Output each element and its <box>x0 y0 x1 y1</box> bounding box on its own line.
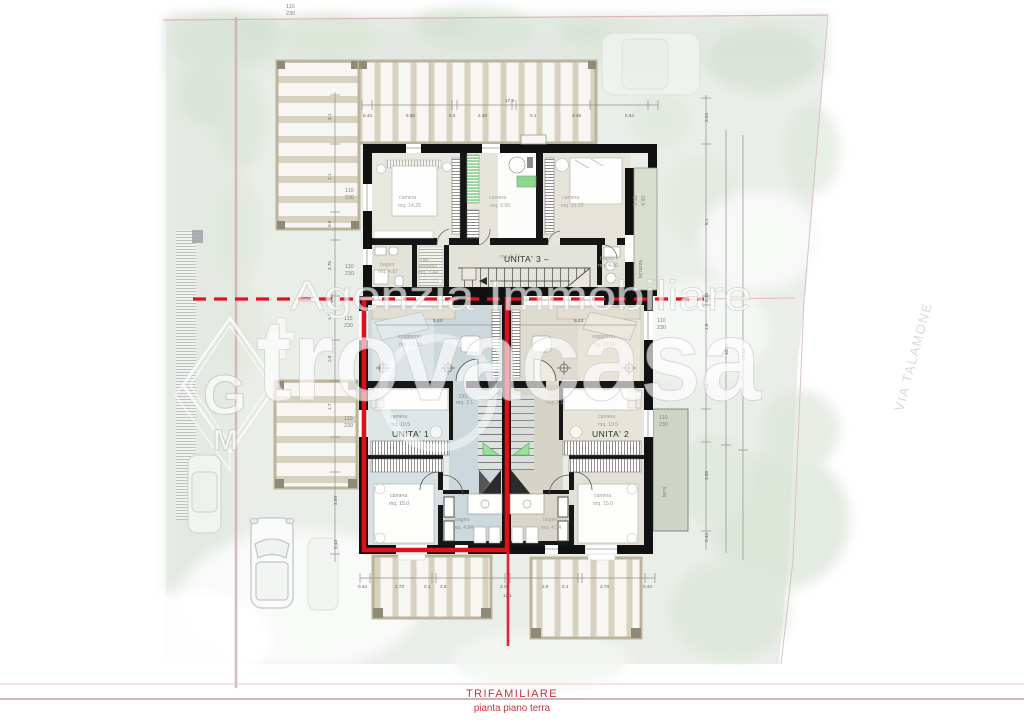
svg-text:0.44: 0.44 <box>358 584 367 589</box>
svg-text:110: 110 <box>286 4 295 10</box>
svg-text:0.2: 0.2 <box>449 113 456 118</box>
svg-text:camera: camera <box>562 195 579 201</box>
svg-text:17.9: 17.9 <box>505 98 514 103</box>
svg-text:0.1: 0.1 <box>530 113 537 118</box>
svg-text:camera: camera <box>390 493 407 499</box>
svg-text:0.5: 0.5 <box>327 220 332 227</box>
svg-text:0.44: 0.44 <box>363 113 372 118</box>
svg-text:mq. 15.0: mq. 15.0 <box>593 501 613 507</box>
svg-text:2.49: 2.49 <box>478 113 487 118</box>
svg-text:bagno: bagno <box>455 517 470 523</box>
svg-text:3.59: 3.59 <box>333 496 338 505</box>
svg-text:bagno: bagno <box>380 262 395 268</box>
svg-text:3.1: 3.1 <box>327 113 332 120</box>
svg-text:2.04: 2.04 <box>704 113 709 122</box>
svg-text:0.1: 0.1 <box>562 584 569 589</box>
svg-text:2.8: 2.8 <box>542 584 549 589</box>
svg-text:2.1: 2.1 <box>327 173 332 180</box>
svg-text:bagno: bagno <box>600 256 615 262</box>
svg-text:9.06: 9.06 <box>406 113 415 118</box>
svg-text:0.44: 0.44 <box>704 533 709 542</box>
svg-text:M: M <box>213 424 238 457</box>
svg-text:UNITA' 3 –: UNITA' 3 – <box>504 254 549 264</box>
svg-text:UNITA' 2: UNITA' 2 <box>592 429 629 439</box>
svg-text:mq. 14.25: mq. 14.25 <box>398 203 421 209</box>
svg-text:3.10: 3.10 <box>633 196 639 207</box>
svg-text:camera: camera <box>594 493 611 499</box>
svg-text:0.44: 0.44 <box>643 584 652 589</box>
svg-text:110: 110 <box>345 264 354 270</box>
svg-text:8.1: 8.1 <box>704 218 709 225</box>
svg-text:camera: camera <box>399 195 416 201</box>
svg-text:0.1: 0.1 <box>424 584 431 589</box>
svg-text:4.75: 4.75 <box>327 261 332 270</box>
svg-text:3.58: 3.58 <box>704 471 709 480</box>
svg-text:mq. 15.0: mq. 15.0 <box>389 501 409 507</box>
svg-text:3.49: 3.49 <box>572 113 581 118</box>
svg-text:2.73: 2.73 <box>395 584 404 589</box>
svg-text:pianta piano terra: pianta piano terra <box>474 703 551 714</box>
svg-text:mq. 4.94: mq. 4.94 <box>541 525 561 531</box>
svg-text:2.73: 2.73 <box>600 584 609 589</box>
svg-text:TRIFAMILIARE: TRIFAMILIARE <box>466 688 558 700</box>
svg-text:230: 230 <box>345 195 354 201</box>
svg-text:0.44: 0.44 <box>625 113 634 118</box>
svg-text:110: 110 <box>345 188 354 194</box>
svg-text:bagno: bagno <box>543 517 558 523</box>
svg-text:terra: terra <box>662 487 668 498</box>
svg-text:camera: camera <box>489 195 506 201</box>
svg-text:mq. 4.94: mq. 4.94 <box>453 525 473 531</box>
svg-text:mq. 4.86: mq. 4.86 <box>598 263 618 269</box>
svg-text:trovacasa: trovacasa <box>256 295 762 425</box>
svg-text:2.8: 2.8 <box>440 584 447 589</box>
svg-text:G: G <box>203 363 247 426</box>
svg-text:0.44: 0.44 <box>333 540 338 549</box>
svg-text:mq. 11.22: mq. 11.22 <box>561 203 584 209</box>
svg-text:mq. 9.50: mq. 9.50 <box>490 203 510 209</box>
svg-text:4.90: 4.90 <box>641 196 647 207</box>
svg-text:230: 230 <box>286 11 295 17</box>
